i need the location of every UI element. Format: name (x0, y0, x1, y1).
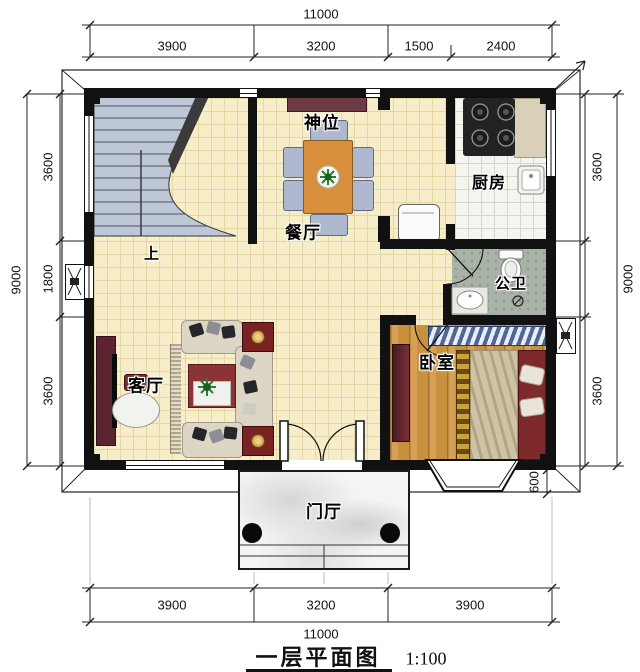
dim-porch-depth: 600 (527, 471, 542, 493)
dim-bottom-seg: 3200 (307, 598, 336, 613)
floor-plan: 神位 餐厅 厨房 公卫 卧室 客厅 门厅 上 11000 3900 3200 1… (0, 0, 640, 672)
table-plant-icon (317, 166, 339, 188)
label-living: 客厅 (128, 372, 164, 397)
label-shrine: 神位 (304, 109, 340, 134)
label-stairs-up: 上 (144, 243, 160, 264)
floor-drain-icon (513, 296, 523, 306)
dim-top-seg: 1500 (405, 39, 434, 54)
kitchen-sink (518, 166, 544, 194)
dim-right-total: 9000 (621, 265, 636, 294)
wash-basin (452, 287, 488, 314)
dim-left-seg: 3600 (41, 153, 56, 182)
dim-left-total: 9000 (9, 266, 24, 295)
bathroom-door (447, 248, 483, 284)
dim-bottom-seg: 3900 (158, 598, 187, 613)
drawing-scale: 1:100 (405, 649, 446, 670)
fixtures-linework (0, 0, 640, 672)
entry-double-door (280, 421, 364, 461)
dim-top-total: 11000 (303, 7, 338, 22)
dim-top-seg: 2400 (487, 39, 516, 54)
stove-burners (472, 104, 514, 146)
dim-left-seg: 1800 (41, 265, 56, 294)
drawing-title: 一层平面图 (255, 640, 380, 672)
label-bath: 公卫 (495, 273, 527, 294)
label-bedroom: 卧室 (419, 349, 455, 374)
dim-left-seg: 3600 (41, 377, 56, 406)
dim-right-seg: 3600 (590, 377, 605, 406)
label-dining: 餐厅 (285, 219, 321, 244)
dim-top-seg: 3900 (158, 39, 187, 54)
label-foyer: 门厅 (306, 498, 342, 523)
dim-right-seg: 3600 (590, 153, 605, 182)
dim-top-seg: 3200 (307, 39, 336, 54)
label-kitchen: 厨房 (472, 169, 506, 193)
dim-bottom-seg: 3900 (456, 598, 485, 613)
living-plant-icon (198, 378, 216, 396)
bay-window (426, 460, 520, 491)
porch-steps (240, 545, 408, 568)
